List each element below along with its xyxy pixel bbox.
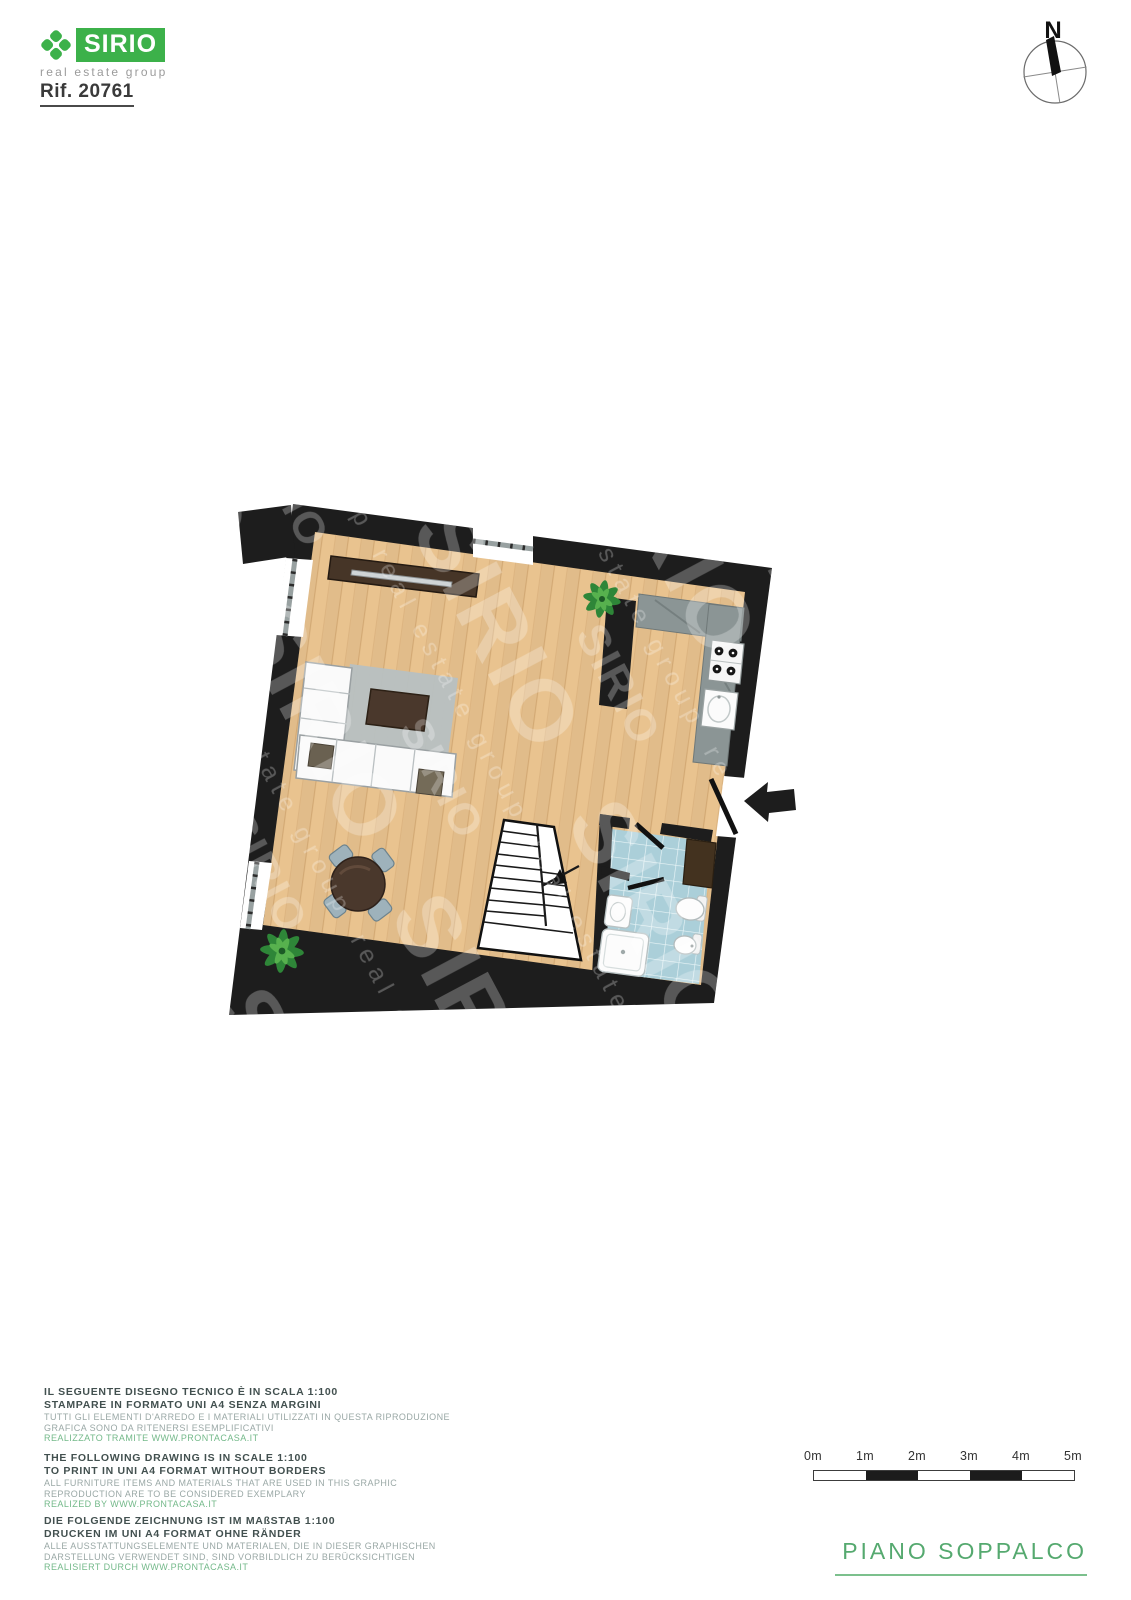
entry-arrow-icon xyxy=(744,782,796,822)
disclaimer-german: DIE FOLGENDE ZEICHNUNG IST IM MAßSTAB 1:… xyxy=(44,1515,524,1573)
disclaimer-link: REALIZED BY WWW.PRONTACASA.IT xyxy=(44,1499,524,1510)
floor-plan-canvas: SIRIO real estate group SIRIO xyxy=(0,0,1131,1600)
scale-label: 3m xyxy=(960,1449,978,1463)
disclaimer-line: THE FOLLOWING DRAWING IS IN SCALE 1:100 xyxy=(44,1452,524,1465)
disclaimer-link: REALIZZATO TRAMITE WWW.PRONTACASA.IT xyxy=(44,1433,524,1444)
scale-bar xyxy=(813,1470,1075,1481)
compass-north-label: N xyxy=(1044,17,1061,44)
scale-segment xyxy=(918,1471,970,1480)
disclaimer-line: DARSTELLUNG VERWENDET SIND, SIND VORBILD… xyxy=(44,1552,524,1563)
scale-segment xyxy=(866,1471,918,1480)
scale-label: 5m xyxy=(1064,1449,1082,1463)
disclaimer-line: ALLE AUSSTATTUNGSELEMENTE UND MATERIALEN… xyxy=(44,1541,524,1552)
watermark-overlay xyxy=(229,504,772,1015)
disclaimer-line: REPRODUCTION ARE TO BE CONSIDERED EXEMPL… xyxy=(44,1489,524,1500)
disclaimer-line: STAMPARE IN FORMATO UNI A4 SENZA MARGINI xyxy=(44,1399,524,1412)
disclaimer-english: THE FOLLOWING DRAWING IS IN SCALE 1:100 … xyxy=(44,1452,524,1510)
disclaimer-line: DIE FOLGENDE ZEICHNUNG IST IM MAßSTAB 1:… xyxy=(44,1515,524,1528)
disclaimer-line: TO PRINT IN UNI A4 FORMAT WITHOUT BORDER… xyxy=(44,1465,524,1478)
scale-bar-labels: 0m 1m 2m 3m 4m 5m xyxy=(813,1449,1073,1463)
disclaimer-line: DRUCKEN IM UNI A4 FORMAT OHNE RÄNDER xyxy=(44,1528,524,1541)
disclaimer-line: TUTTI GLI ELEMENTI D'ARREDO E I MATERIAL… xyxy=(44,1412,524,1423)
scale-segment xyxy=(814,1471,866,1480)
floor-title: PIANO SOPPALCO xyxy=(835,1538,1087,1576)
disclaimer-link: REALISIERT DURCH WWW.PRONTACASA.IT xyxy=(44,1562,524,1573)
disclaimer-italian: IL SEGUENTE DISEGNO TECNICO È IN SCALA 1… xyxy=(44,1386,524,1444)
scale-label: 1m xyxy=(856,1449,874,1463)
disclaimer-line: IL SEGUENTE DISEGNO TECNICO È IN SCALA 1… xyxy=(44,1386,524,1399)
scale-label: 2m xyxy=(908,1449,926,1463)
scale-segment xyxy=(1022,1471,1074,1480)
scale-label: 4m xyxy=(1012,1449,1030,1463)
disclaimer-line: ALL FURNITURE ITEMS AND MATERIALS THAT A… xyxy=(44,1478,524,1489)
scale-segment xyxy=(970,1471,1022,1480)
compass-icon: N xyxy=(1023,17,1086,103)
disclaimer-line: GRAFICA SONO DA RITENERSI ESEMPLIFICATIV… xyxy=(44,1423,524,1434)
scale-label: 0m xyxy=(804,1449,822,1463)
